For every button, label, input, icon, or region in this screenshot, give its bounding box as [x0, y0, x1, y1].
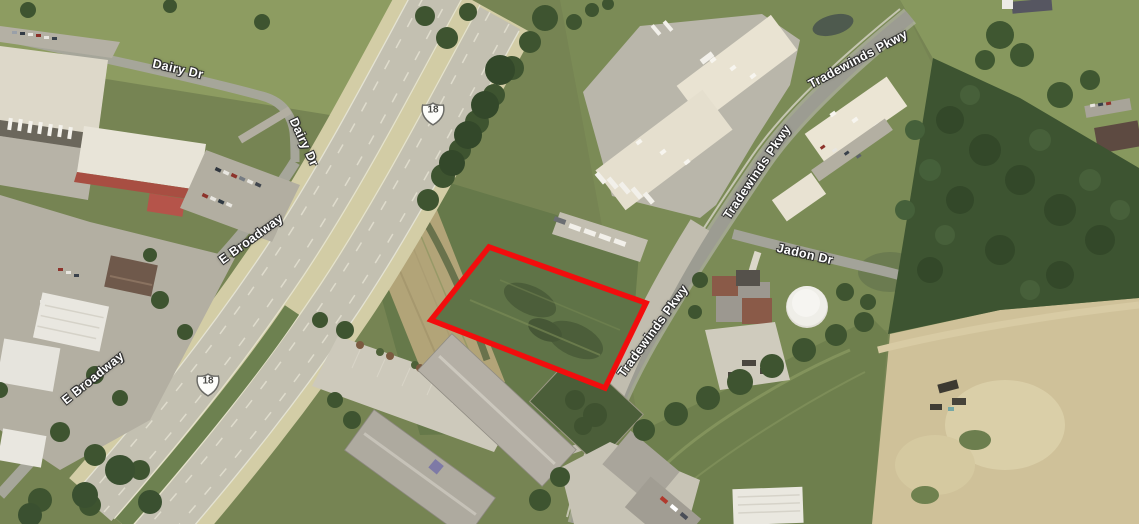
aerial-imagery: [0, 0, 1139, 524]
route-number: 18: [420, 105, 447, 116]
route-number: 18: [195, 376, 222, 387]
aerial-map-view: Dairy Dr Dairy Dr E Broadway E Broadway …: [0, 0, 1139, 524]
us-route-18-shield-south: 18: [195, 373, 222, 398]
us-route-18-shield-north: 18: [420, 102, 447, 127]
water-tank: [786, 286, 828, 328]
dirt-construction-area: [872, 298, 1139, 524]
